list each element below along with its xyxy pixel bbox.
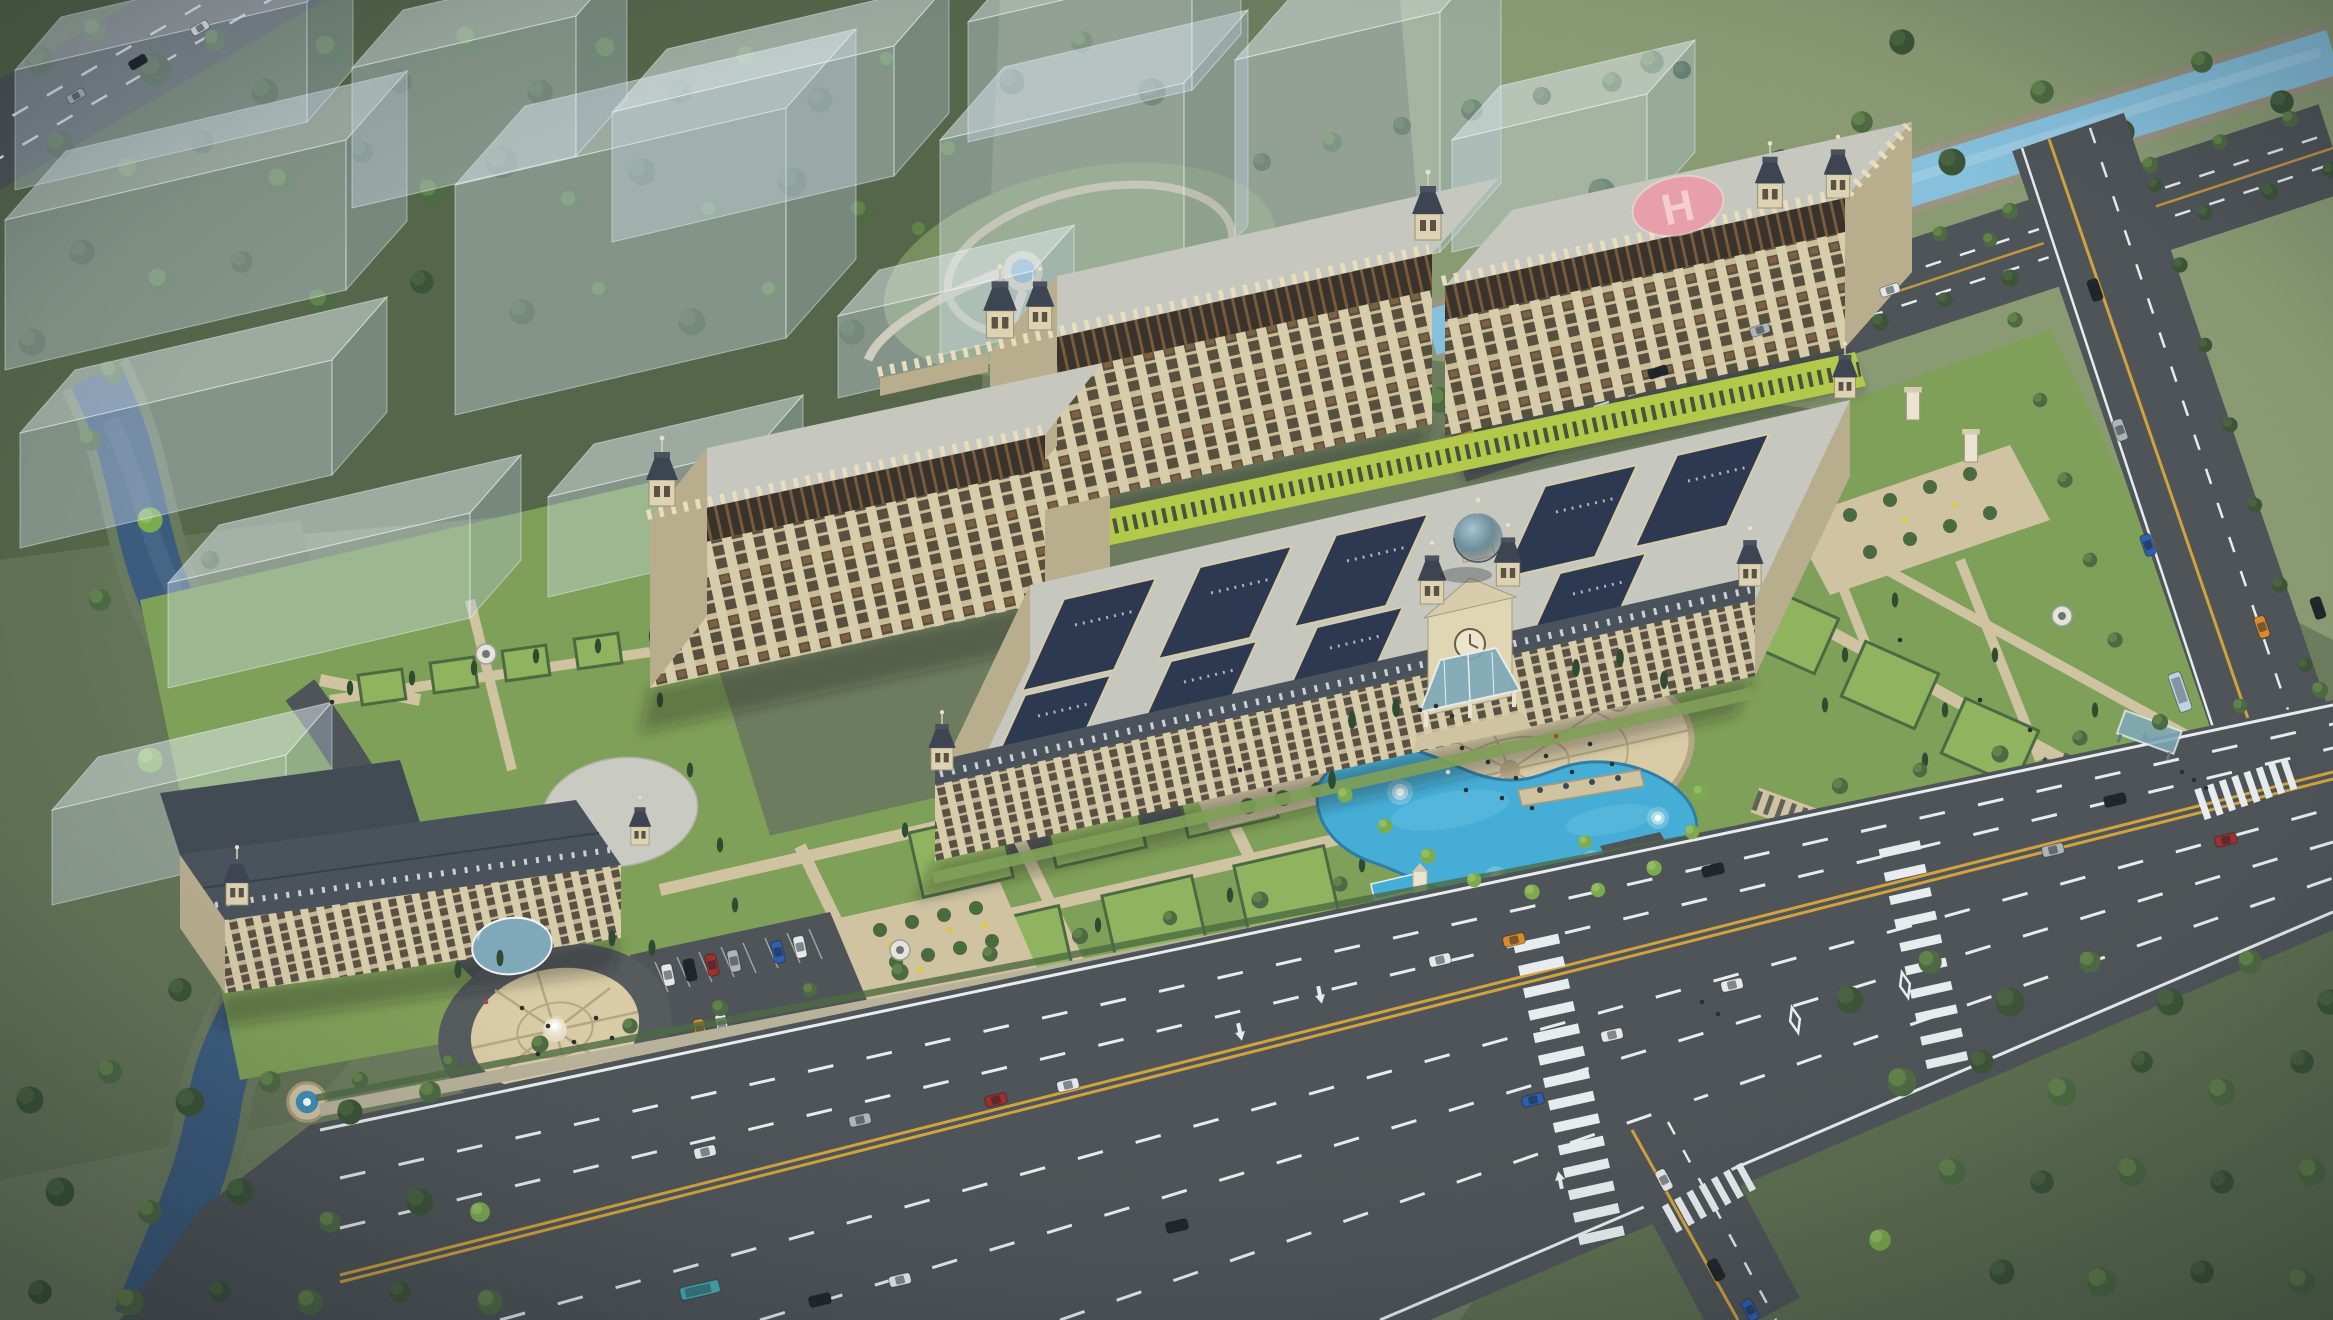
aerial-site-rendering: H [0, 0, 2333, 1320]
scene-canvas: H [0, 0, 2333, 1320]
vignette-overlay [0, 0, 2333, 1320]
